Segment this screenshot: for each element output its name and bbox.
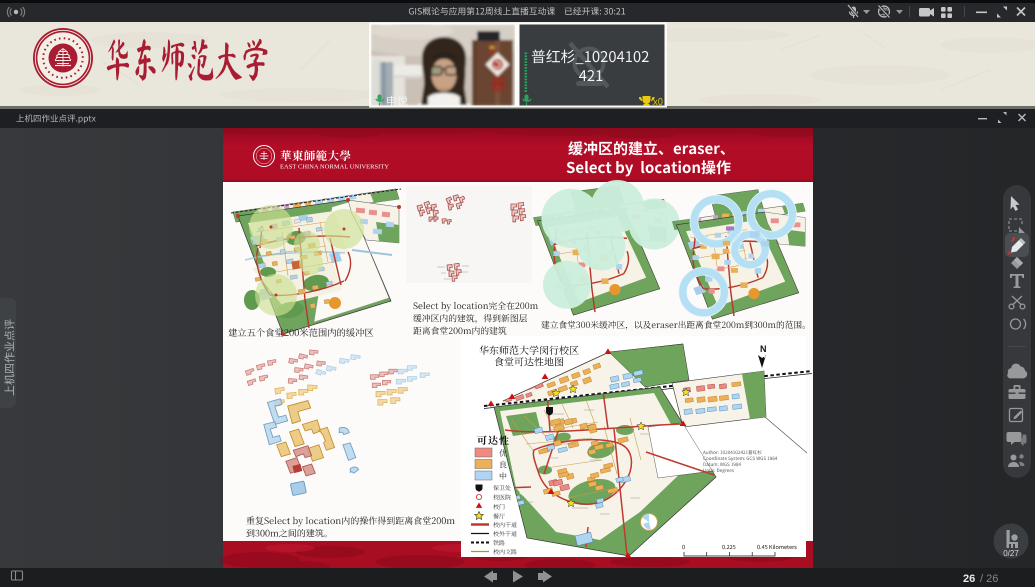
svg-text:EAST CHINA NORMAL UNIVERSITY: EAST CHINA NORMAL UNIVERSITY bbox=[280, 164, 389, 171]
svg-text:/ 26: / 26 bbox=[980, 573, 998, 585]
svg-text:N: N bbox=[760, 344, 767, 354]
svg-text:0/27: 0/27 bbox=[1003, 549, 1019, 558]
svg-text:26: 26 bbox=[963, 573, 975, 585]
